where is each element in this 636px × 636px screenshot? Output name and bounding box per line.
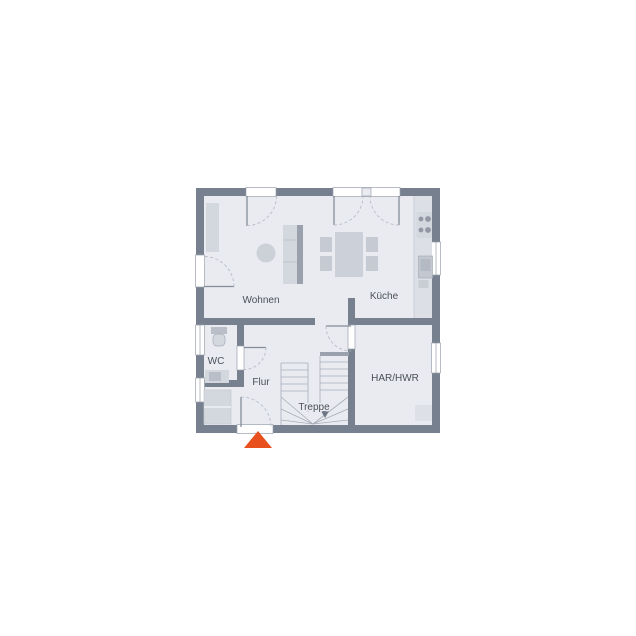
wall-kueche-har [355, 318, 432, 325]
wall-kueche-stub [348, 298, 355, 325]
stair-top-edge [320, 352, 349, 356]
room-label-wc: WC [208, 356, 225, 367]
utility-unit [415, 405, 432, 421]
floor-plan: Wohnen Küche WC Flur Treppe HAR/HWR [0, 0, 636, 636]
room-label-har-hwr: HAR/HWR [371, 373, 419, 384]
stove-icon [417, 212, 433, 238]
window-flur-left [196, 378, 205, 402]
shelf-unit [283, 225, 303, 284]
chair [366, 256, 378, 271]
round-table [257, 244, 276, 263]
toilet-icon [211, 327, 227, 346]
dining-table [335, 232, 363, 277]
room-label-wohnen: Wohnen [242, 295, 279, 306]
floor-area [196, 188, 440, 433]
chair [366, 237, 378, 252]
chair [320, 256, 332, 271]
wall-wc-right-upper [237, 325, 244, 346]
chair [320, 237, 332, 252]
sideboard [206, 203, 219, 252]
window-wc-left [196, 325, 205, 355]
window-kueche-right [432, 242, 441, 275]
kitchen-counter [414, 196, 433, 318]
window-har-right [432, 343, 441, 373]
room-label-kueche: Küche [370, 291, 399, 302]
wc-sink-icon [205, 370, 229, 383]
room-label-treppe: Treppe [298, 402, 330, 413]
wardrobe [204, 390, 231, 424]
wall-wohnen-flur [204, 318, 315, 325]
wall-treppe-har [348, 349, 355, 425]
room-label-flur: Flur [252, 377, 270, 388]
